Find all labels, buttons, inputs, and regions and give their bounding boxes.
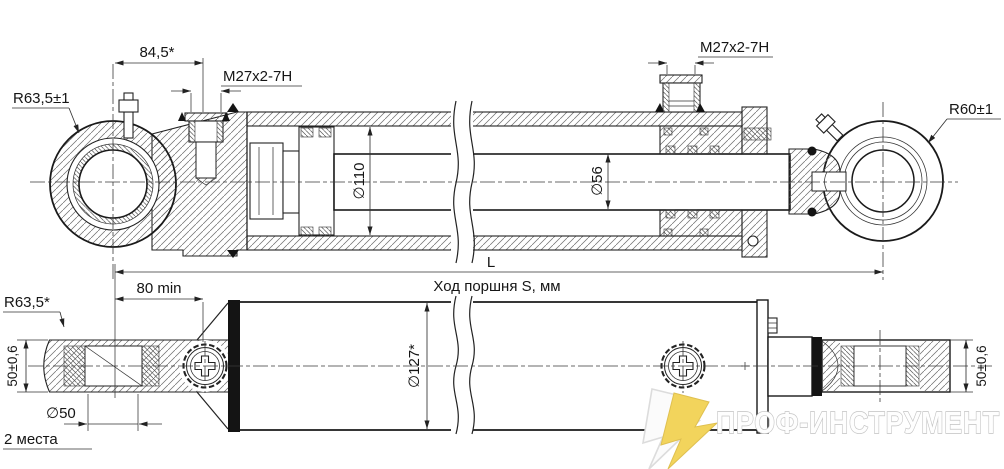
piston-nut <box>250 143 283 219</box>
dim-eye-radius-right: R60±1 <box>928 101 1001 143</box>
dim-pin-hole: ∅50 2 места <box>3 394 162 449</box>
barrel-wall-bottom <box>247 236 742 250</box>
dim-label-offset: 84,5* <box>139 44 174 61</box>
drawing-canvas: 84,5* M27x2-7H M27x2-7H R63,5±1 R6 <box>0 0 1004 469</box>
dim-cylinder-diameter: ∅110 <box>351 127 370 235</box>
dim-mount-offset: 80 min <box>115 280 203 342</box>
label-pin-hole-diameter: ∅50 <box>46 405 76 422</box>
label-port-thread-left: M27x2-7H <box>223 68 292 85</box>
label-eye-radius-left: R63,5±1 <box>13 90 70 107</box>
label-eye-width-left: 50±0,6 <box>5 345 20 386</box>
brand-watermark: ПРОФ-ИНСТРУМЕНТ <box>643 389 1000 469</box>
label-port-thread-right: M27x2-7H <box>700 39 769 56</box>
dim-eye-radius-bottom: R63,5* <box>3 294 64 327</box>
label-eye-radius-bottom: R63,5* <box>4 294 50 311</box>
brand-text: ПРОФ-ИНСТРУМЕНТ <box>716 405 1000 440</box>
piston <box>299 127 334 235</box>
right-eye <box>789 111 943 241</box>
label-rod-diameter: ∅56 <box>589 166 606 196</box>
dim-thread-left: M27x2-7H <box>171 68 302 112</box>
label-cylinder-diameter: ∅110 <box>351 163 368 200</box>
label-tube-diameter: ∅127* <box>406 344 423 388</box>
barrel-wall-top <box>247 112 742 126</box>
top-view-section: 84,5* M27x2-7H M27x2-7H R63,5±1 R6 <box>12 39 1001 295</box>
dim-eye-radius-left: R63,5±1 <box>12 90 79 133</box>
weld-band-right <box>812 337 822 396</box>
label-mount-offset: 80 min <box>136 280 181 297</box>
hydraulic-cylinder-drawing: 84,5* M27x2-7H M27x2-7H R63,5±1 R6 <box>0 0 1004 469</box>
label-pin-hole-places: 2 места <box>4 431 58 448</box>
label-eye-width-right: 50±0,6 <box>974 345 989 386</box>
dim-overall-length: L Ход поршня S, мм <box>115 254 883 295</box>
dim-thread-right: M27x2-7H <box>648 39 773 74</box>
port-plug-right <box>655 75 705 112</box>
piston-assembly <box>250 127 334 236</box>
label-eye-radius-right: R60±1 <box>949 101 993 118</box>
label-overall-length: L <box>487 254 495 271</box>
label-stroke: Ход поршня S, мм <box>433 278 560 295</box>
flange-bolt-1 <box>768 318 777 333</box>
rod-plan <box>768 337 812 396</box>
